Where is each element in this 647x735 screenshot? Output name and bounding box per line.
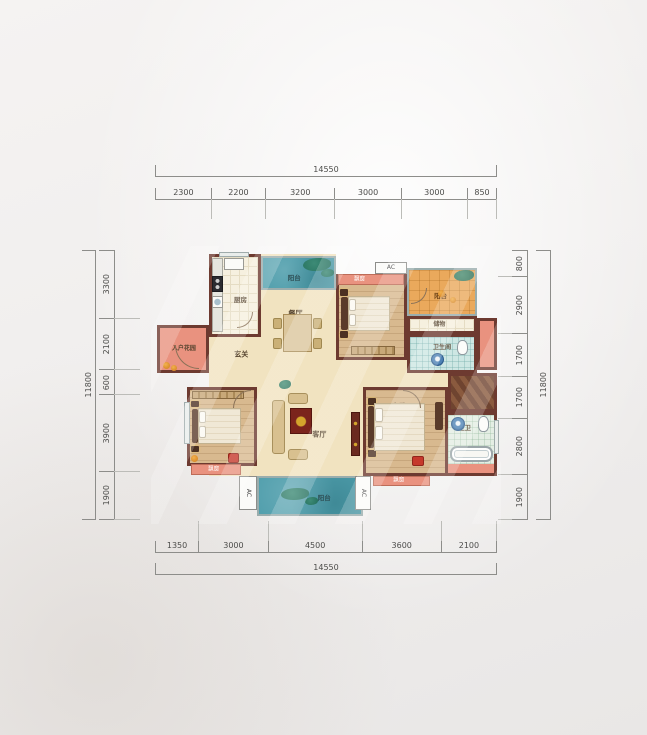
- dim-label: 2900: [515, 295, 524, 315]
- dim-segment-bottom-total-0: 14550: [156, 563, 497, 574]
- dim-label: 1700: [515, 387, 524, 407]
- ruler-left-segments: 3300210060039001900: [99, 250, 115, 520]
- room-balcony-bottom: 阳台: [257, 476, 363, 516]
- room-ac-platform-bottom-right: AC: [355, 476, 371, 510]
- room-label-balcony-bottom: 阳台: [318, 495, 331, 502]
- dim-label: 850: [474, 188, 489, 197]
- dim-label: 3200: [290, 188, 310, 197]
- dining-chair: [273, 338, 282, 349]
- dim-label: 11800: [84, 372, 93, 397]
- room-label-balcony-top: 阳台: [288, 275, 301, 282]
- coffee-table: [290, 408, 312, 434]
- room-window-master-bath: [494, 420, 499, 454]
- kitchen-basin: [212, 296, 223, 308]
- dim-label: 600: [102, 375, 111, 390]
- bedroom2-headboard: [341, 297, 348, 330]
- dim-segment-top-0: 2300: [156, 188, 212, 199]
- ruler-top-segments: 23002200320030003000850: [155, 188, 497, 200]
- room-bay-window-master-bath: [448, 464, 494, 473]
- kitchen-counter: [212, 258, 223, 332]
- room-label-kitchen: 厨房: [234, 297, 247, 304]
- sofa-main: [272, 400, 285, 454]
- dim-segment-top-5: 850: [468, 188, 497, 199]
- dim-label: 2300: [173, 188, 193, 197]
- room-bay-window-bedroom-3: 飘窗: [191, 464, 241, 475]
- room-label-living-room: 客厅: [312, 432, 326, 439]
- room-bay-window-bedroom-2: 飘窗: [338, 274, 404, 285]
- room-hallway: 玄关: [209, 337, 261, 377]
- room-label-bay-window-bedroom-3: 飘窗: [208, 467, 219, 473]
- bathtub: [450, 446, 493, 462]
- room-window-kitchen: [219, 252, 249, 257]
- dim-label: 800: [515, 256, 524, 271]
- master-bath-sink: [451, 417, 465, 431]
- bedroom3-nightstand: [191, 401, 199, 407]
- master-pillow: [375, 408, 383, 422]
- fruit: [450, 297, 456, 303]
- fruit: [163, 362, 170, 369]
- fruit: [191, 455, 198, 462]
- dim-segment-left-1: 2100: [99, 319, 114, 370]
- ruler-right-total: 11800: [536, 250, 551, 520]
- dim-segment-right-2: 1700: [512, 334, 527, 376]
- ruler-bottom-segments: 13503000450036002100: [155, 541, 497, 553]
- dim-label: 2800: [515, 436, 524, 456]
- bedroom2-nightstand: [340, 331, 348, 338]
- dim-label: 14550: [313, 165, 338, 174]
- master-nightstand: [368, 450, 376, 457]
- bedroom2-wardrobe: [351, 346, 395, 355]
- dining-chair: [313, 318, 322, 329]
- kitchen-stove: [212, 276, 223, 292]
- bedroom2-nightstand: [340, 289, 348, 296]
- room-ac-platform-bottom-left: AC: [239, 476, 257, 510]
- dim-segment-right-1: 2900: [512, 277, 527, 334]
- armchair: [288, 449, 308, 460]
- room-hatch-area: [448, 373, 497, 412]
- dim-label: 1350: [167, 541, 187, 550]
- dim-segment-top-2: 3200: [266, 188, 335, 199]
- dim-label: 14550: [313, 563, 338, 572]
- dim-segment-right-4: 2800: [512, 419, 527, 475]
- room-label-hallway: 玄关: [234, 352, 248, 359]
- tv-cabinet: [351, 412, 360, 456]
- kitchen-sink: [224, 258, 244, 270]
- bedroom3-pillow: [199, 426, 206, 438]
- dim-segment-top-total-0: 14550: [156, 165, 497, 176]
- dim-segment-right-0: 800: [512, 251, 527, 277]
- dim-label: 1900: [515, 487, 524, 507]
- room-label-ac-platform-bottom-right: AC: [360, 489, 366, 497]
- dim-label: 3000: [424, 188, 444, 197]
- ruler-right-segments: 80029001700170028001900: [512, 250, 528, 520]
- dim-segment-left-0: 3300: [99, 251, 114, 319]
- dining-chair: [313, 338, 322, 349]
- dim-segment-bottom-1: 3000: [199, 541, 269, 552]
- room-label-bathroom: 卫生间: [433, 345, 451, 351]
- dim-label: 3000: [358, 188, 378, 197]
- room-label-bay-window-bedroom-2: 飘窗: [354, 277, 365, 283]
- dim-label: 2200: [228, 188, 248, 197]
- dim-segment-bottom-2: 4500: [269, 541, 363, 552]
- dim-segment-bottom-0: 1350: [156, 541, 199, 552]
- floor-plan: 入户花园厨房阳台次卧飘窗AC阳台储物卫生间次卧主卧主卫阳台飘窗飘窗ACAC玄关餐…: [155, 250, 497, 520]
- red-accent: [228, 453, 239, 463]
- room-label-bay-window-master: 飘窗: [393, 478, 404, 484]
- dining-table: [283, 314, 312, 352]
- floor-corridor: [407, 373, 448, 387]
- dim-segment-bottom-4: 2100: [442, 541, 497, 552]
- fruit: [438, 290, 445, 297]
- bedroom2-pillow: [349, 314, 356, 326]
- dim-segment-right-5: 1900: [512, 475, 527, 520]
- ruler-bottom-total: 14550: [155, 563, 497, 575]
- dim-segment-top-3: 3000: [335, 188, 401, 199]
- dim-label: 3300: [102, 274, 111, 294]
- ruler-top-total: 14550: [155, 165, 497, 177]
- room-duct-block: [477, 318, 497, 370]
- room-label-storage: 储物: [433, 322, 445, 328]
- room-storage: 储物: [407, 316, 477, 334]
- dim-label: 3600: [392, 541, 412, 550]
- armchair: [288, 393, 308, 404]
- dim-segment-left-4: 1900: [99, 472, 114, 520]
- floor-plan-page: 14550 23002200320030003000850 1350300045…: [0, 0, 647, 735]
- bedroom3-nightstand: [191, 446, 199, 452]
- room-bay-window-master: 飘窗: [373, 476, 430, 486]
- dim-label: 4500: [305, 541, 325, 550]
- dim-label: 2100: [459, 541, 479, 550]
- bedroom2-pillow: [349, 299, 356, 311]
- dim-label: 1900: [102, 485, 111, 505]
- master-dresser: [435, 402, 443, 430]
- dim-segment-top-4: 3000: [402, 188, 468, 199]
- dim-segment-right-3: 1700: [512, 377, 527, 419]
- dim-label: 1700: [515, 345, 524, 365]
- dim-segment-left-2: 600: [99, 370, 114, 395]
- room-ac-platform-top: AC: [375, 262, 407, 274]
- red-accent: [412, 456, 424, 466]
- dim-segment-right-total-0: 11800: [536, 251, 550, 520]
- bedroom3-pillow: [199, 411, 206, 423]
- dim-segment-left-3: 3900: [99, 395, 114, 472]
- ruler-left-total: 11800: [82, 250, 96, 520]
- dim-label: 2100: [102, 334, 111, 354]
- room-label-ac-platform-top: AC: [387, 265, 395, 271]
- dim-label: 11800: [539, 372, 548, 397]
- dim-segment-bottom-3: 3600: [363, 541, 442, 552]
- master-pillow: [375, 426, 383, 440]
- dim-label: 3900: [102, 423, 111, 443]
- room-window-bedroom-3: [184, 402, 190, 444]
- bath-sink: [431, 353, 444, 366]
- dim-segment-top-1: 2200: [212, 188, 266, 199]
- dim-segment-left-total-0: 11800: [82, 251, 95, 520]
- dining-chair: [273, 318, 282, 329]
- dim-label: 3000: [223, 541, 243, 550]
- toilet: [457, 340, 468, 355]
- room-label-ac-platform-bottom-left: AC: [245, 489, 251, 497]
- fruit: [171, 365, 177, 371]
- master-toilet: [478, 416, 489, 432]
